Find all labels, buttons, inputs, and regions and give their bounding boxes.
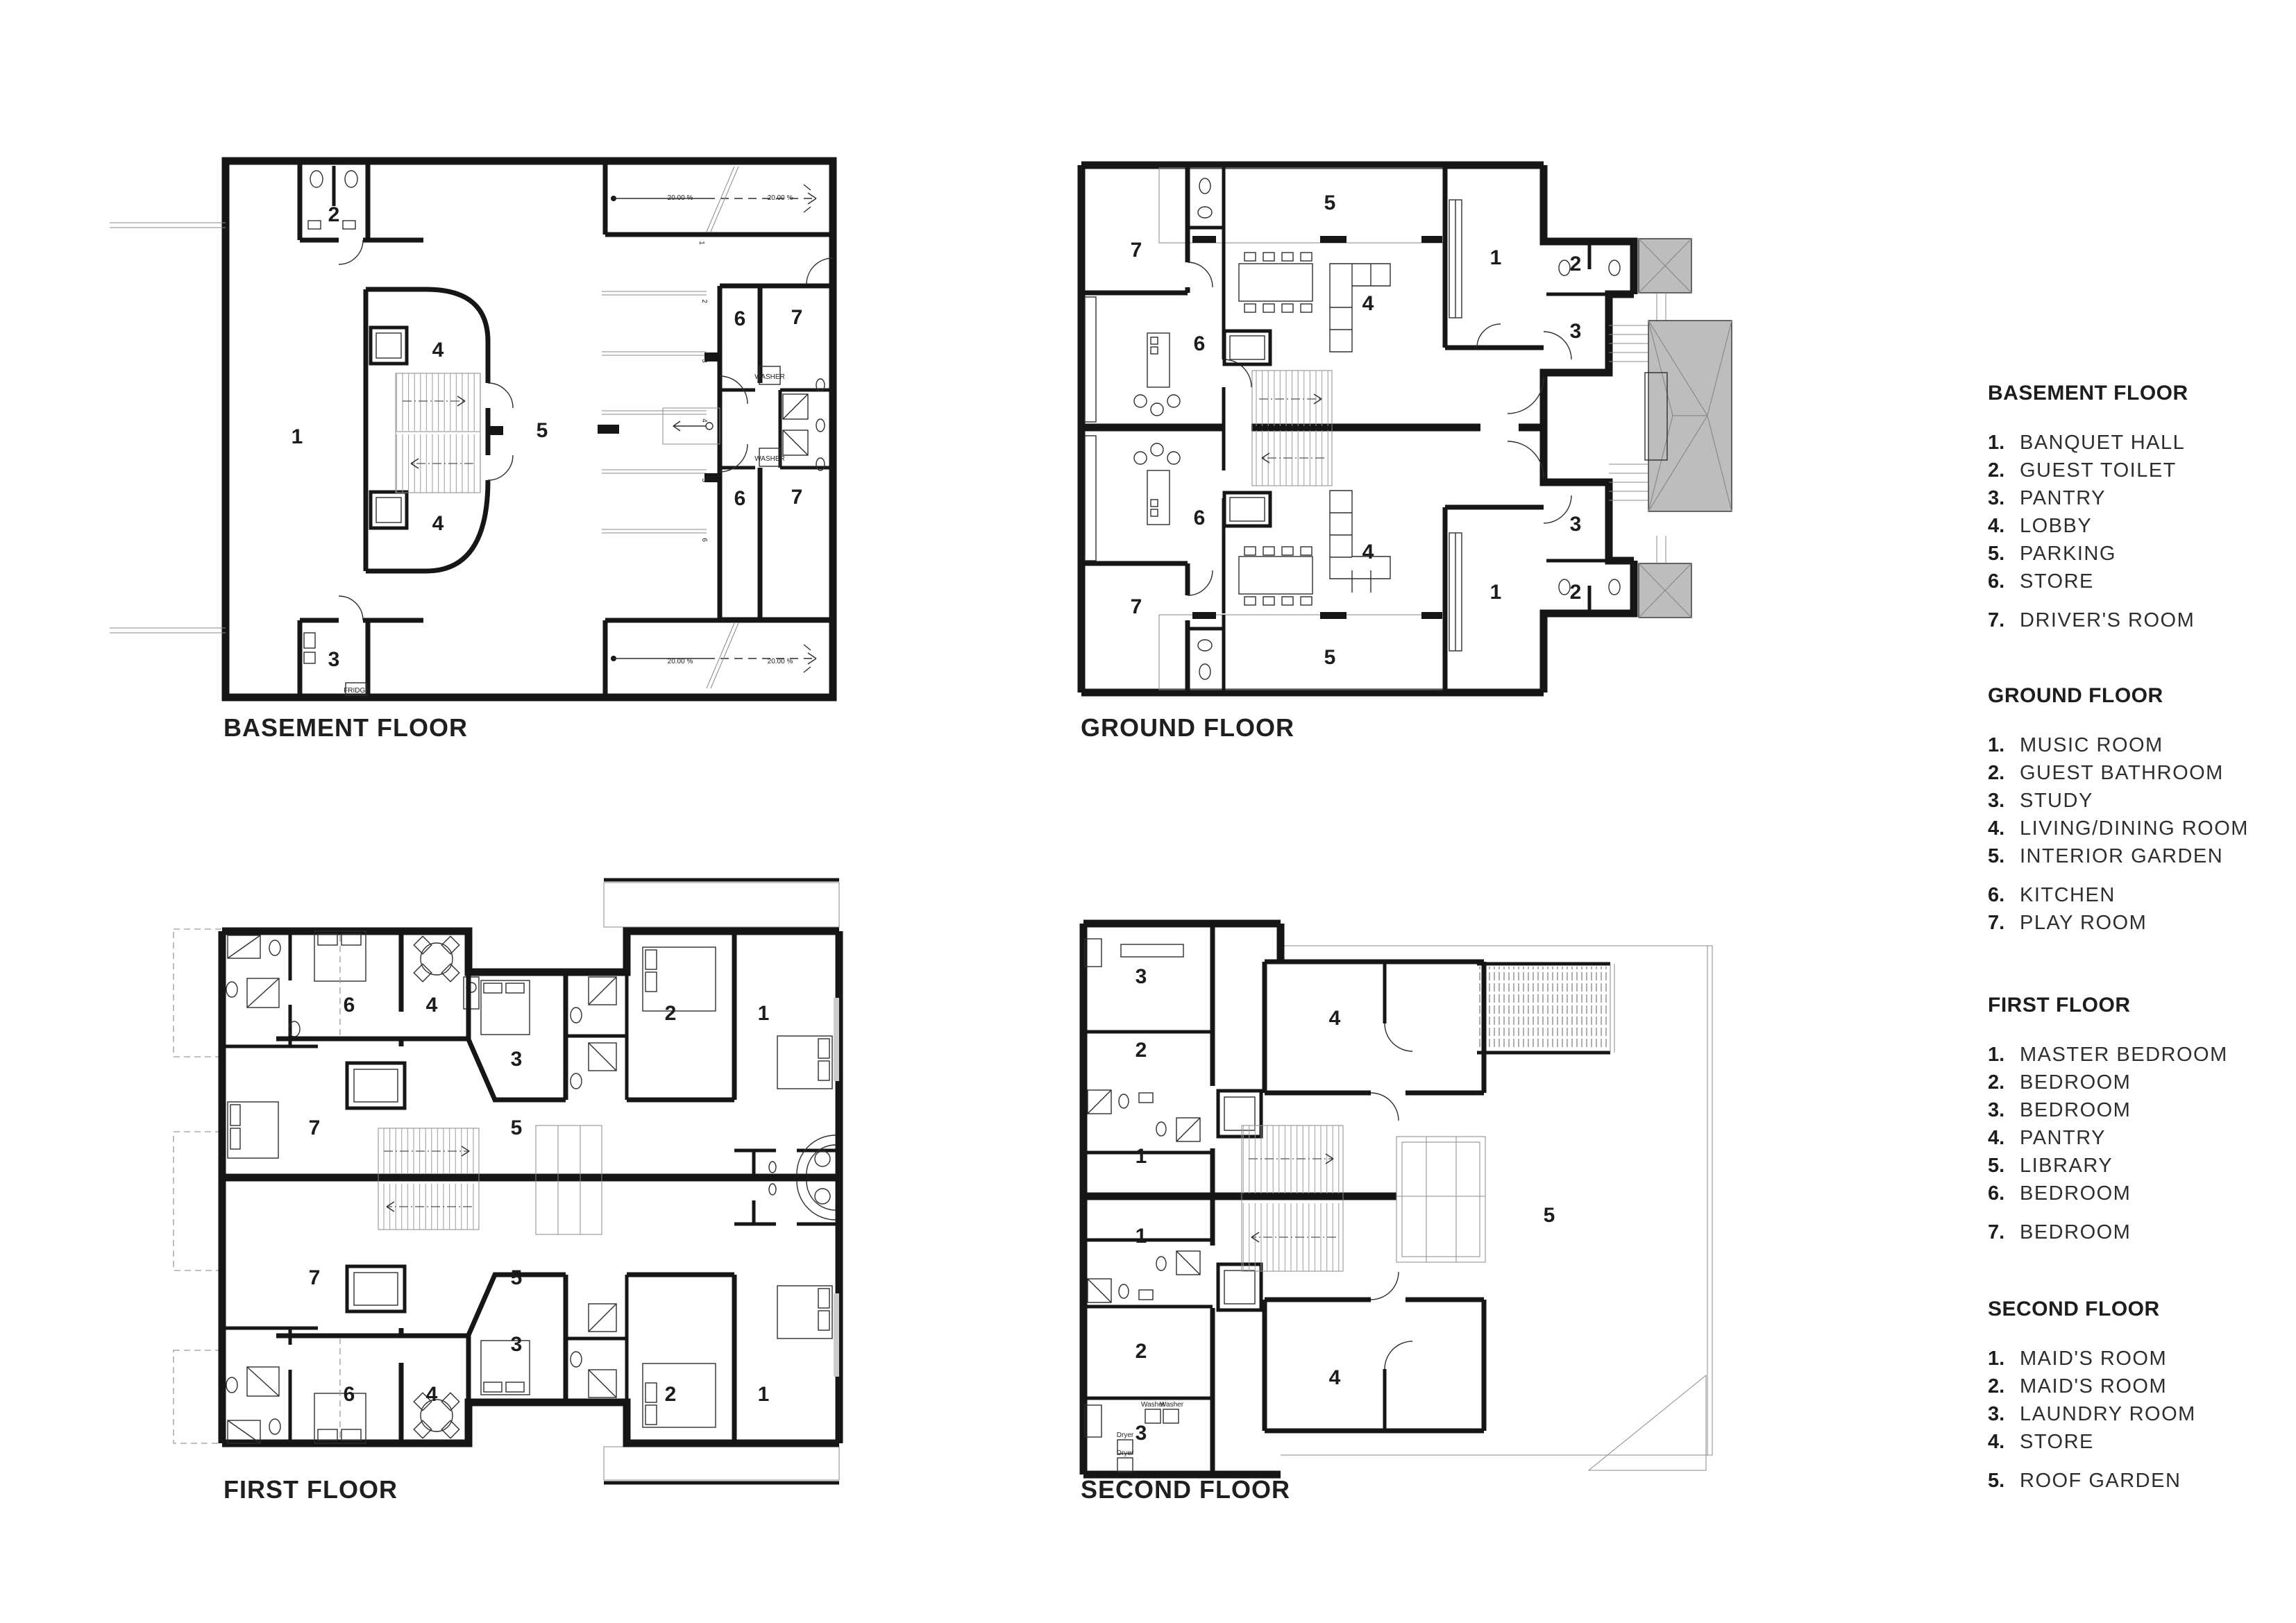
svg-text:5: 5	[1544, 1204, 1555, 1227]
svg-text:1: 1	[758, 1383, 770, 1406]
svg-text:6: 6	[700, 538, 708, 542]
svg-text:1: 1	[1490, 581, 1502, 604]
legend-item: 3.BEDROOM	[1988, 1099, 2296, 1127]
svg-text:3: 3	[511, 1333, 523, 1356]
legend-basement-title: BASEMENT FLOOR	[1988, 382, 2296, 405]
legend-item: 1.MAID'S ROOM	[1988, 1348, 2296, 1375]
legend-ground-title: GROUND FLOOR	[1988, 684, 2296, 708]
svg-text:6: 6	[344, 1383, 355, 1406]
svg-text:4: 4	[432, 512, 444, 535]
svg-text:2: 2	[700, 299, 708, 303]
second-floor-plan: 321123445 WasherWasherDryerDryer	[1079, 919, 1725, 1481]
svg-text:20.00 %: 20.00 %	[668, 194, 693, 202]
legend-item: 5.PARKING	[1988, 543, 2296, 570]
svg-text:WASHER: WASHER	[754, 455, 785, 463]
ground-walls	[1081, 165, 1732, 692]
svg-text:1: 1	[698, 241, 705, 245]
svg-text:2: 2	[665, 1002, 677, 1025]
svg-text:3: 3	[328, 648, 340, 671]
architectural-sheet: 2144567673 20.00 %20.00 %20.00 %20.00 %1…	[0, 0, 2296, 1623]
svg-text:20.00 %: 20.00 %	[668, 658, 693, 665]
legend-first: FIRST FLOOR 1.MASTER BEDROOM 2.BEDROOM 3…	[1988, 994, 2296, 1249]
svg-text:4: 4	[1362, 292, 1374, 315]
svg-text:6: 6	[1194, 507, 1206, 529]
ground-caption: GROUND FLOOR	[1081, 713, 1294, 742]
svg-text:7: 7	[1131, 595, 1142, 618]
svg-text:1: 1	[1136, 1145, 1147, 1168]
svg-text:1: 1	[1136, 1225, 1147, 1248]
ground-floor-plan: 57641233214675	[1074, 158, 1734, 699]
legend-item: 5.LIBRARY	[1988, 1155, 2296, 1182]
svg-text:2: 2	[1570, 253, 1582, 275]
svg-text:3: 3	[1570, 320, 1582, 343]
svg-text:5: 5	[700, 478, 708, 482]
svg-text:Washer: Washer	[1160, 1401, 1184, 1409]
svg-text:4: 4	[1329, 1007, 1341, 1030]
svg-text:Dryer: Dryer	[1117, 1431, 1134, 1439]
first-caption: FIRST FLOOR	[223, 1475, 398, 1504]
svg-text:2: 2	[1136, 1340, 1147, 1363]
second-walls	[1083, 924, 1712, 1475]
svg-text:5: 5	[511, 1266, 523, 1289]
legend-item: 4.LIVING/DINING ROOM	[1988, 817, 2296, 845]
legend-item: 7.BEDROOM	[1988, 1221, 2296, 1249]
svg-text:6: 6	[734, 307, 746, 330]
basement-walls	[110, 161, 833, 697]
svg-text:20.00 %: 20.00 %	[768, 658, 793, 665]
legend-item: 6.STORE	[1988, 570, 2296, 598]
svg-text:6: 6	[734, 487, 746, 510]
svg-text:5: 5	[1324, 646, 1336, 669]
legend-item: 2.GUEST TOILET	[1988, 459, 2296, 487]
svg-text:5: 5	[1324, 192, 1336, 214]
first-floor-plan: 64321757536421	[172, 873, 856, 1525]
svg-text:3: 3	[511, 1048, 523, 1071]
svg-text:7: 7	[791, 306, 803, 329]
legend-item: 4.LOBBY	[1988, 515, 2296, 543]
second-caption: SECOND FLOOR	[1081, 1475, 1290, 1504]
svg-text:2: 2	[1570, 581, 1582, 604]
legend-item: 1.BANQUET HALL	[1988, 432, 2296, 459]
legend-item: 6.KITCHEN	[1988, 884, 2296, 912]
svg-text:7: 7	[1131, 239, 1142, 262]
svg-text:2: 2	[328, 203, 340, 226]
legend-item: 6.BEDROOM	[1988, 1182, 2296, 1210]
svg-text:4: 4	[1362, 541, 1374, 563]
legend-item: 3.LAUNDRY ROOM	[1988, 1403, 2296, 1431]
svg-text:1: 1	[758, 1002, 770, 1025]
legend-item: 4.PANTRY	[1988, 1127, 2296, 1155]
svg-text:3: 3	[1136, 965, 1147, 988]
svg-text:7: 7	[309, 1266, 321, 1289]
svg-text:20.00 %: 20.00 %	[768, 194, 793, 202]
legend-item: 5.INTERIOR GARDEN	[1988, 845, 2296, 873]
svg-text:1: 1	[1490, 246, 1502, 269]
svg-text:2: 2	[665, 1383, 677, 1406]
svg-text:4: 4	[432, 339, 444, 362]
svg-text:4: 4	[426, 1383, 438, 1406]
legend-first-title: FIRST FLOOR	[1988, 994, 2296, 1017]
legend-item: 2.MAID'S ROOM	[1988, 1375, 2296, 1403]
legend-item: 5.ROOF GARDEN	[1988, 1470, 2296, 1497]
svg-text:Dryer: Dryer	[1117, 1450, 1134, 1457]
legend-item: 7.PLAY ROOM	[1988, 912, 2296, 940]
legend-item: 3.STUDY	[1988, 790, 2296, 817]
legend-item: 4.STORE	[1988, 1431, 2296, 1459]
svg-text:3: 3	[700, 359, 708, 363]
svg-text:3: 3	[1136, 1422, 1147, 1445]
legend-basement: BASEMENT FLOOR 1.BANQUET HALL 2.GUEST TO…	[1988, 382, 2296, 637]
svg-text:3: 3	[1570, 513, 1582, 536]
svg-text:WASHER: WASHER	[754, 373, 785, 381]
svg-text:6: 6	[344, 994, 355, 1017]
legend-item: 1.MASTER BEDROOM	[1988, 1044, 2296, 1071]
svg-text:4: 4	[426, 994, 438, 1017]
svg-text:6: 6	[1194, 332, 1206, 355]
basement-floor-plan: 2144567673 20.00 %20.00 %20.00 %20.00 %1…	[221, 154, 838, 706]
svg-text:FRIDGE: FRIDGE	[344, 687, 370, 695]
legend-second-title: SECOND FLOOR	[1988, 1298, 2296, 1321]
basement-caption: BASEMENT FLOOR	[223, 713, 468, 742]
svg-text:4: 4	[1329, 1366, 1341, 1389]
legend-item: 2.BEDROOM	[1988, 1071, 2296, 1099]
legend-item: 2.GUEST BATHROOM	[1988, 762, 2296, 790]
svg-text:5: 5	[537, 419, 548, 442]
legend-item: 7.DRIVER'S ROOM	[1988, 609, 2296, 637]
svg-text:7: 7	[791, 486, 803, 509]
first-room-numbers: 64321757536421	[309, 994, 770, 1406]
svg-text:5: 5	[511, 1116, 523, 1139]
svg-text:4: 4	[700, 418, 708, 423]
svg-text:2: 2	[1136, 1039, 1147, 1062]
legend-item: 1.MUSIC ROOM	[1988, 734, 2296, 762]
legend-item: 3.PANTRY	[1988, 487, 2296, 515]
first-walls	[174, 880, 839, 1483]
svg-text:1: 1	[292, 425, 303, 448]
legend-ground: GROUND FLOOR 1.MUSIC ROOM 2.GUEST BATHRO…	[1988, 684, 2296, 940]
legend-second: SECOND FLOOR 1.MAID'S ROOM 2.MAID'S ROOM…	[1988, 1298, 2296, 1497]
svg-text:7: 7	[309, 1116, 321, 1139]
